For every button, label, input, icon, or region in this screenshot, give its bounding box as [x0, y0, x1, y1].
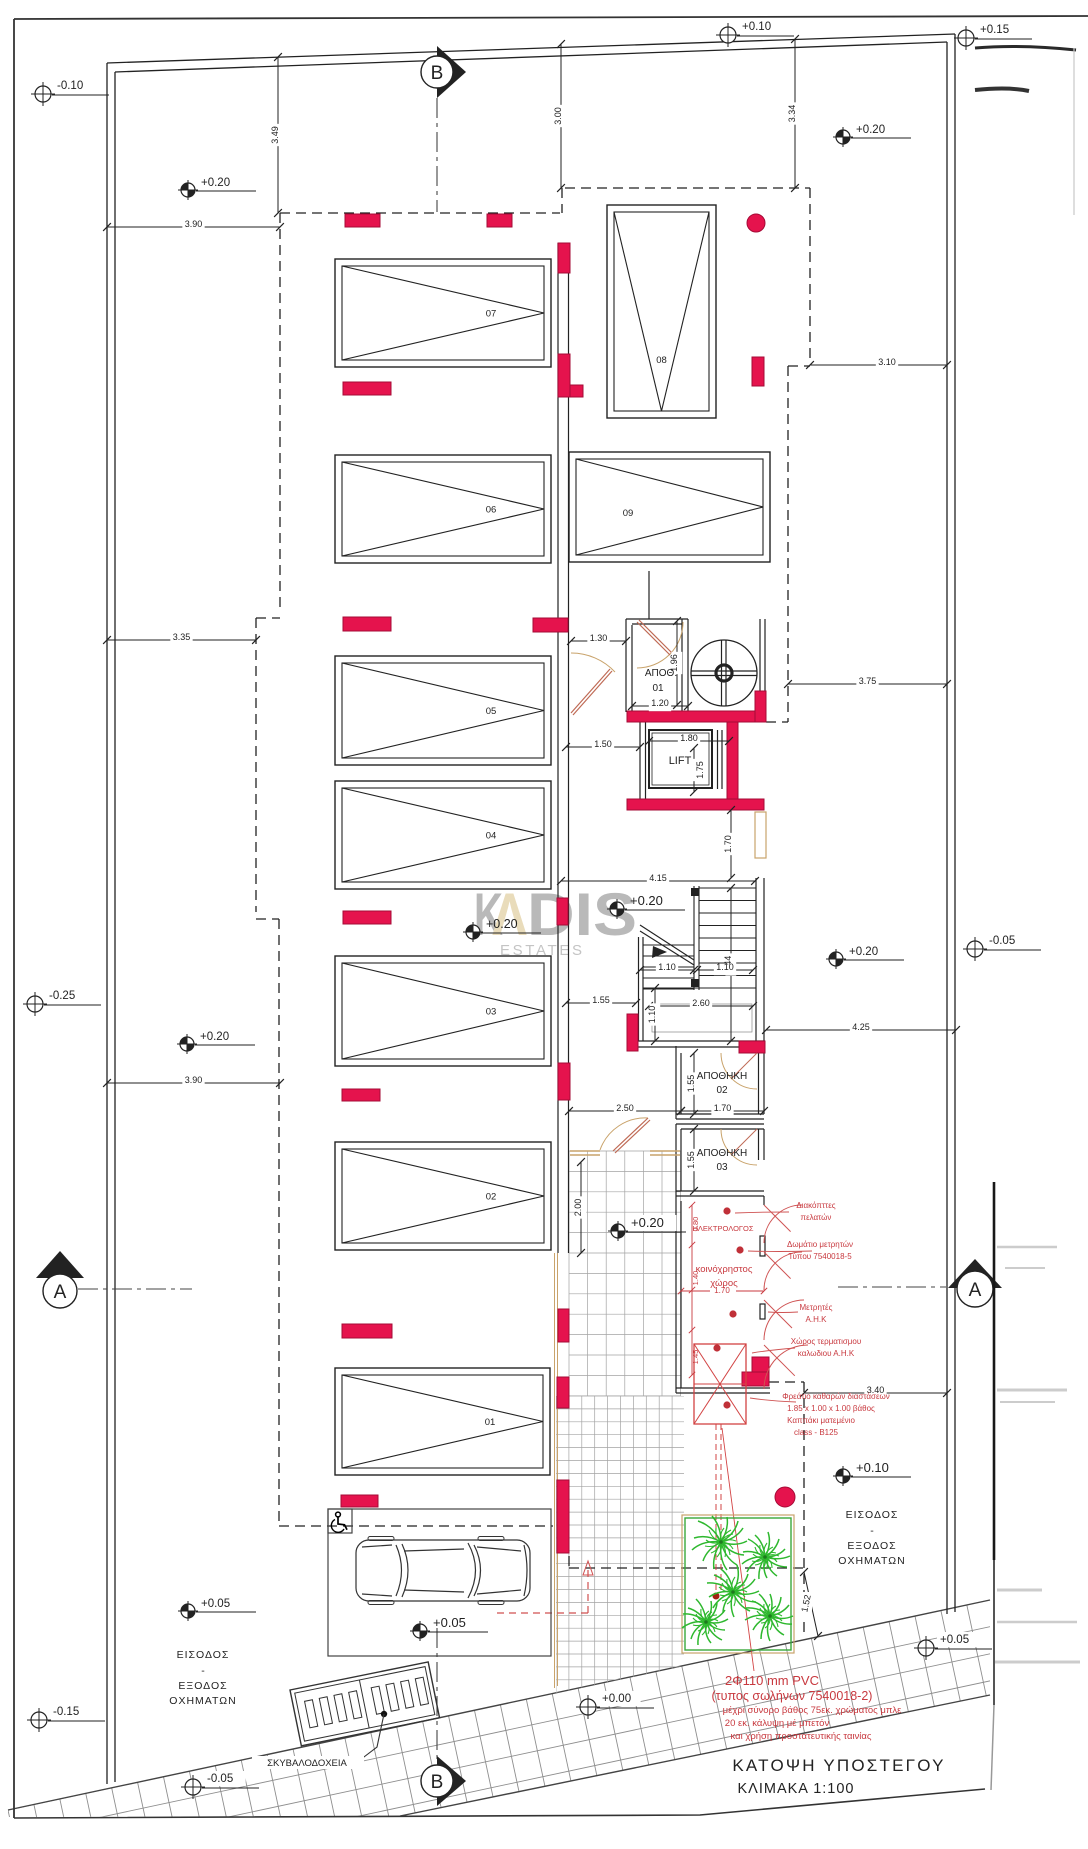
svg-text:ΕΞΟΔΟΣ: ΕΞΟΔΟΣ — [178, 1680, 227, 1692]
svg-text:3.49: 3.49 — [270, 126, 280, 144]
svg-text:+0.10: +0.10 — [742, 21, 771, 33]
svg-text:01: 01 — [652, 683, 664, 694]
svg-text:και χρήση προστατευτικής ταινί: και χρήση προστατευτικής ταινίας — [730, 1731, 871, 1742]
svg-text:08: 08 — [656, 355, 667, 366]
svg-text:+0.00: +0.00 — [602, 1693, 631, 1705]
svg-text:Φρεάτιο καθαρών διαστάσεων: Φρεάτιο καθαρών διαστάσεων — [782, 1392, 890, 1401]
svg-text:20 εκ. κάλυψη μέ μπετόν: 20 εκ. κάλυψη μέ μπετόν — [725, 1718, 830, 1729]
svg-text:κοινόχρηστος: κοινόχρηστος — [696, 1264, 753, 1275]
svg-text:ΕΙΣΟΔΟΣ: ΕΙΣΟΔΟΣ — [846, 1509, 899, 1521]
svg-text:-0.05: -0.05 — [989, 935, 1015, 947]
svg-text:+0.05: +0.05 — [940, 1634, 969, 1646]
svg-text:02: 02 — [486, 1192, 497, 1203]
svg-text:+0.20: +0.20 — [630, 893, 663, 908]
svg-text:B: B — [431, 1772, 444, 1793]
svg-text:2.00: 2.00 — [573, 1199, 583, 1217]
svg-text:1.55: 1.55 — [686, 1151, 696, 1169]
svg-text:Α.Η.Κ: Α.Η.Κ — [806, 1315, 828, 1324]
svg-text:-: - — [201, 1665, 205, 1677]
svg-text:1.10: 1.10 — [647, 1006, 657, 1024]
svg-text:ΟΧΗΜΑΤΩΝ: ΟΧΗΜΑΤΩΝ — [838, 1555, 905, 1567]
svg-text:+0.20: +0.20 — [849, 946, 878, 958]
svg-text:A: A — [54, 1282, 67, 1303]
svg-text:3.75: 3.75 — [859, 676, 877, 686]
svg-text:ΑΠΟΘ.: ΑΠΟΘ. — [645, 668, 677, 679]
svg-text:1.20: 1.20 — [651, 698, 669, 708]
svg-text:+0.20: +0.20 — [201, 177, 230, 189]
svg-text:04: 04 — [486, 831, 497, 842]
svg-text:3.00: 3.00 — [553, 107, 563, 125]
svg-text:Διακόπττες: Διακόπττες — [796, 1201, 835, 1210]
svg-text:1.45: 1.45 — [691, 1350, 700, 1365]
svg-text:01: 01 — [485, 1417, 496, 1428]
svg-text:3.10: 3.10 — [878, 357, 896, 367]
svg-text:class - B125: class - B125 — [794, 1428, 839, 1437]
svg-text:-0.25: -0.25 — [49, 990, 75, 1002]
svg-text:ΑΠΟΘΗΚΗ: ΑΠΟΘΗΚΗ — [697, 1148, 748, 1159]
svg-text:1.55: 1.55 — [686, 1075, 696, 1093]
svg-text:03: 03 — [716, 1162, 728, 1173]
svg-text:+0.20: +0.20 — [631, 1215, 664, 1230]
svg-text:+0.05: +0.05 — [201, 1598, 230, 1610]
svg-text:+0.20: +0.20 — [856, 124, 885, 136]
svg-text:2Φ110 mm PVC: 2Φ110 mm PVC — [725, 1673, 819, 1688]
svg-text:χώρος: χώρος — [710, 1278, 738, 1289]
svg-text:1.50: 1.50 — [594, 739, 612, 749]
svg-text:4.15: 4.15 — [649, 873, 667, 883]
svg-text:1.30: 1.30 — [590, 633, 608, 643]
svg-text:+0.10: +0.10 — [856, 1460, 889, 1475]
svg-text:4.25: 4.25 — [852, 1022, 870, 1032]
svg-text:+0.05: +0.05 — [433, 1615, 466, 1630]
svg-text:ΕΙΣΟΔΟΣ: ΕΙΣΟΔΟΣ — [177, 1649, 230, 1661]
svg-text:2.60: 2.60 — [692, 998, 710, 1008]
svg-text:3.90: 3.90 — [185, 1075, 203, 1085]
svg-text:Δωμάτιο μετρητών: Δωμάτιο μετρητών — [787, 1240, 853, 1249]
svg-text:+0.20: +0.20 — [200, 1031, 229, 1043]
svg-text:Μετρητές: Μετρητές — [800, 1303, 833, 1312]
svg-text:ΚΛΙΜΑΚΑ 1:100: ΚΛΙΜΑΚΑ 1:100 — [738, 1781, 855, 1797]
svg-text:2.50: 2.50 — [616, 1103, 634, 1113]
svg-text:09: 09 — [623, 508, 634, 519]
svg-text:-0.15: -0.15 — [53, 1706, 79, 1718]
svg-text:A: A — [969, 1280, 982, 1301]
svg-text:ΚΑΤΟΨΗ ΥΠΟΣΤΕΓΟΥ: ΚΑΤΟΨΗ ΥΠΟΣΤΕΓΟΥ — [732, 1756, 945, 1775]
svg-text:μέχρι σύνορο βάθος 75εκ. χρώμ: μέχρι σύνορο βάθος 75εκ. χρώματος μπλε — [723, 1705, 903, 1716]
svg-text:-0.05: -0.05 — [207, 1773, 233, 1785]
svg-text:07: 07 — [486, 309, 497, 320]
svg-text:+0.15: +0.15 — [980, 24, 1009, 36]
svg-text:ΑΠΟΘΗΚΗ: ΑΠΟΘΗΚΗ — [697, 1071, 748, 1082]
svg-text:Χώρος τερματισμου: Χώρος τερματισμου — [791, 1337, 861, 1346]
svg-text:ΣΚΥΒΑΛΟΔΟΧΕΙΑ: ΣΚΥΒΑΛΟΔΟΧΕΙΑ — [267, 1758, 347, 1769]
svg-text:1.10: 1.10 — [658, 962, 676, 972]
svg-text:ΕΞΟΔΟΣ: ΕΞΟΔΟΣ — [847, 1540, 896, 1552]
svg-text:3.35: 3.35 — [173, 632, 191, 642]
svg-text:+0.20: +0.20 — [486, 917, 518, 931]
svg-text:-0.10: -0.10 — [57, 80, 83, 92]
svg-text:1.80: 1.80 — [680, 733, 698, 743]
svg-text:3.90: 3.90 — [185, 219, 203, 229]
svg-text:06: 06 — [486, 505, 497, 516]
svg-text:1.70: 1.70 — [714, 1103, 732, 1113]
svg-text:05: 05 — [486, 706, 497, 717]
svg-text:02: 02 — [716, 1085, 728, 1096]
svg-text:3.34: 3.34 — [787, 105, 797, 123]
svg-text:πελατών: πελατών — [801, 1213, 832, 1222]
svg-text:Τύπου 7540018-5: Τύπου 7540018-5 — [788, 1252, 852, 1261]
svg-text:1.55: 1.55 — [592, 995, 610, 1005]
svg-text:1.70: 1.70 — [723, 835, 733, 853]
svg-text:καλωδιου Α.Η.Κ: καλωδιου Α.Η.Κ — [798, 1349, 855, 1358]
svg-text:(τυπος σωλήνων 7540018-2): (τυπος σωλήνων 7540018-2) — [712, 1689, 873, 1703]
svg-text:Λ: Λ — [492, 881, 527, 948]
svg-text:Καππάκι ματεμένιο: Καππάκι ματεμένιο — [787, 1416, 855, 1425]
svg-text:1.85 x 1.00 x 1.00 βάθος: 1.85 x 1.00 x 1.00 βάθος — [787, 1404, 875, 1413]
svg-text:B: B — [431, 63, 444, 84]
svg-text:1.75: 1.75 — [695, 761, 705, 779]
svg-text:LIFT: LIFT — [669, 755, 692, 767]
svg-text:ΟΧΗΜΑΤΩΝ: ΟΧΗΜΑΤΩΝ — [169, 1695, 236, 1707]
svg-text:ΗΛΕΚΤΡΟΛΟΓΟΣ: ΗΛΕΚΤΡΟΛΟΓΟΣ — [693, 1224, 754, 1233]
svg-text:-: - — [870, 1525, 874, 1537]
svg-text:03: 03 — [486, 1007, 497, 1018]
svg-text:1.10: 1.10 — [716, 962, 734, 972]
